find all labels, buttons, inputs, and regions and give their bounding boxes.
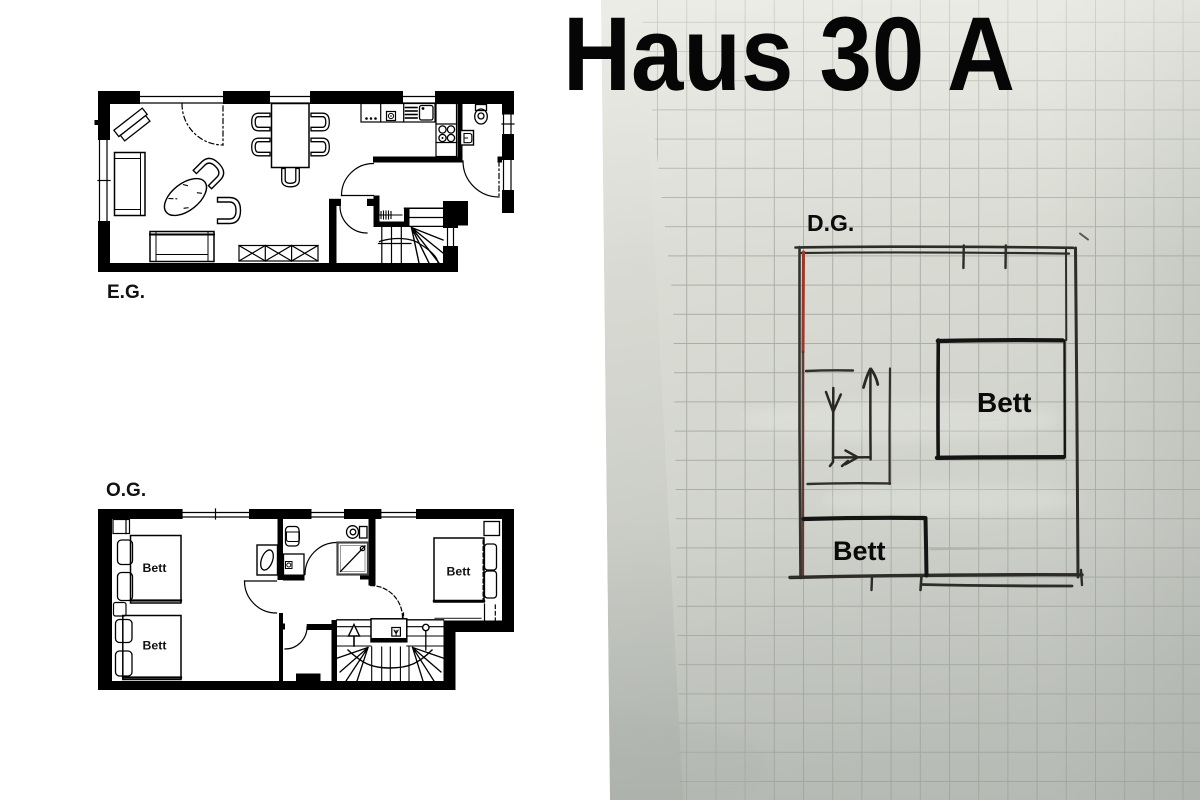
svg-text:Bett: Bett bbox=[143, 639, 167, 653]
svg-text:D.G.: D.G. bbox=[807, 210, 854, 236]
svg-text:E.G.: E.G. bbox=[107, 282, 145, 303]
svg-text:Bett: Bett bbox=[977, 387, 1031, 418]
svg-text:Haus 30 A: Haus 30 A bbox=[563, 0, 1015, 113]
svg-text:O.G.: O.G. bbox=[106, 480, 146, 501]
svg-text:Bett: Bett bbox=[447, 565, 471, 579]
svg-text:Bett: Bett bbox=[143, 561, 167, 575]
svg-text:Bett: Bett bbox=[833, 536, 886, 566]
